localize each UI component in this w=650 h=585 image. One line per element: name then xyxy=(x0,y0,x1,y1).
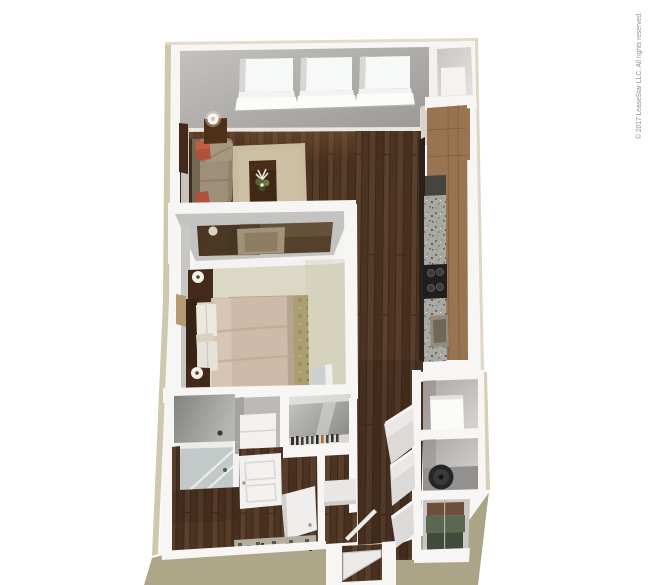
svg-text:© 2017 LeaseStar LLC. All righ: © 2017 LeaseStar LLC. All rights reserve… xyxy=(634,12,643,139)
